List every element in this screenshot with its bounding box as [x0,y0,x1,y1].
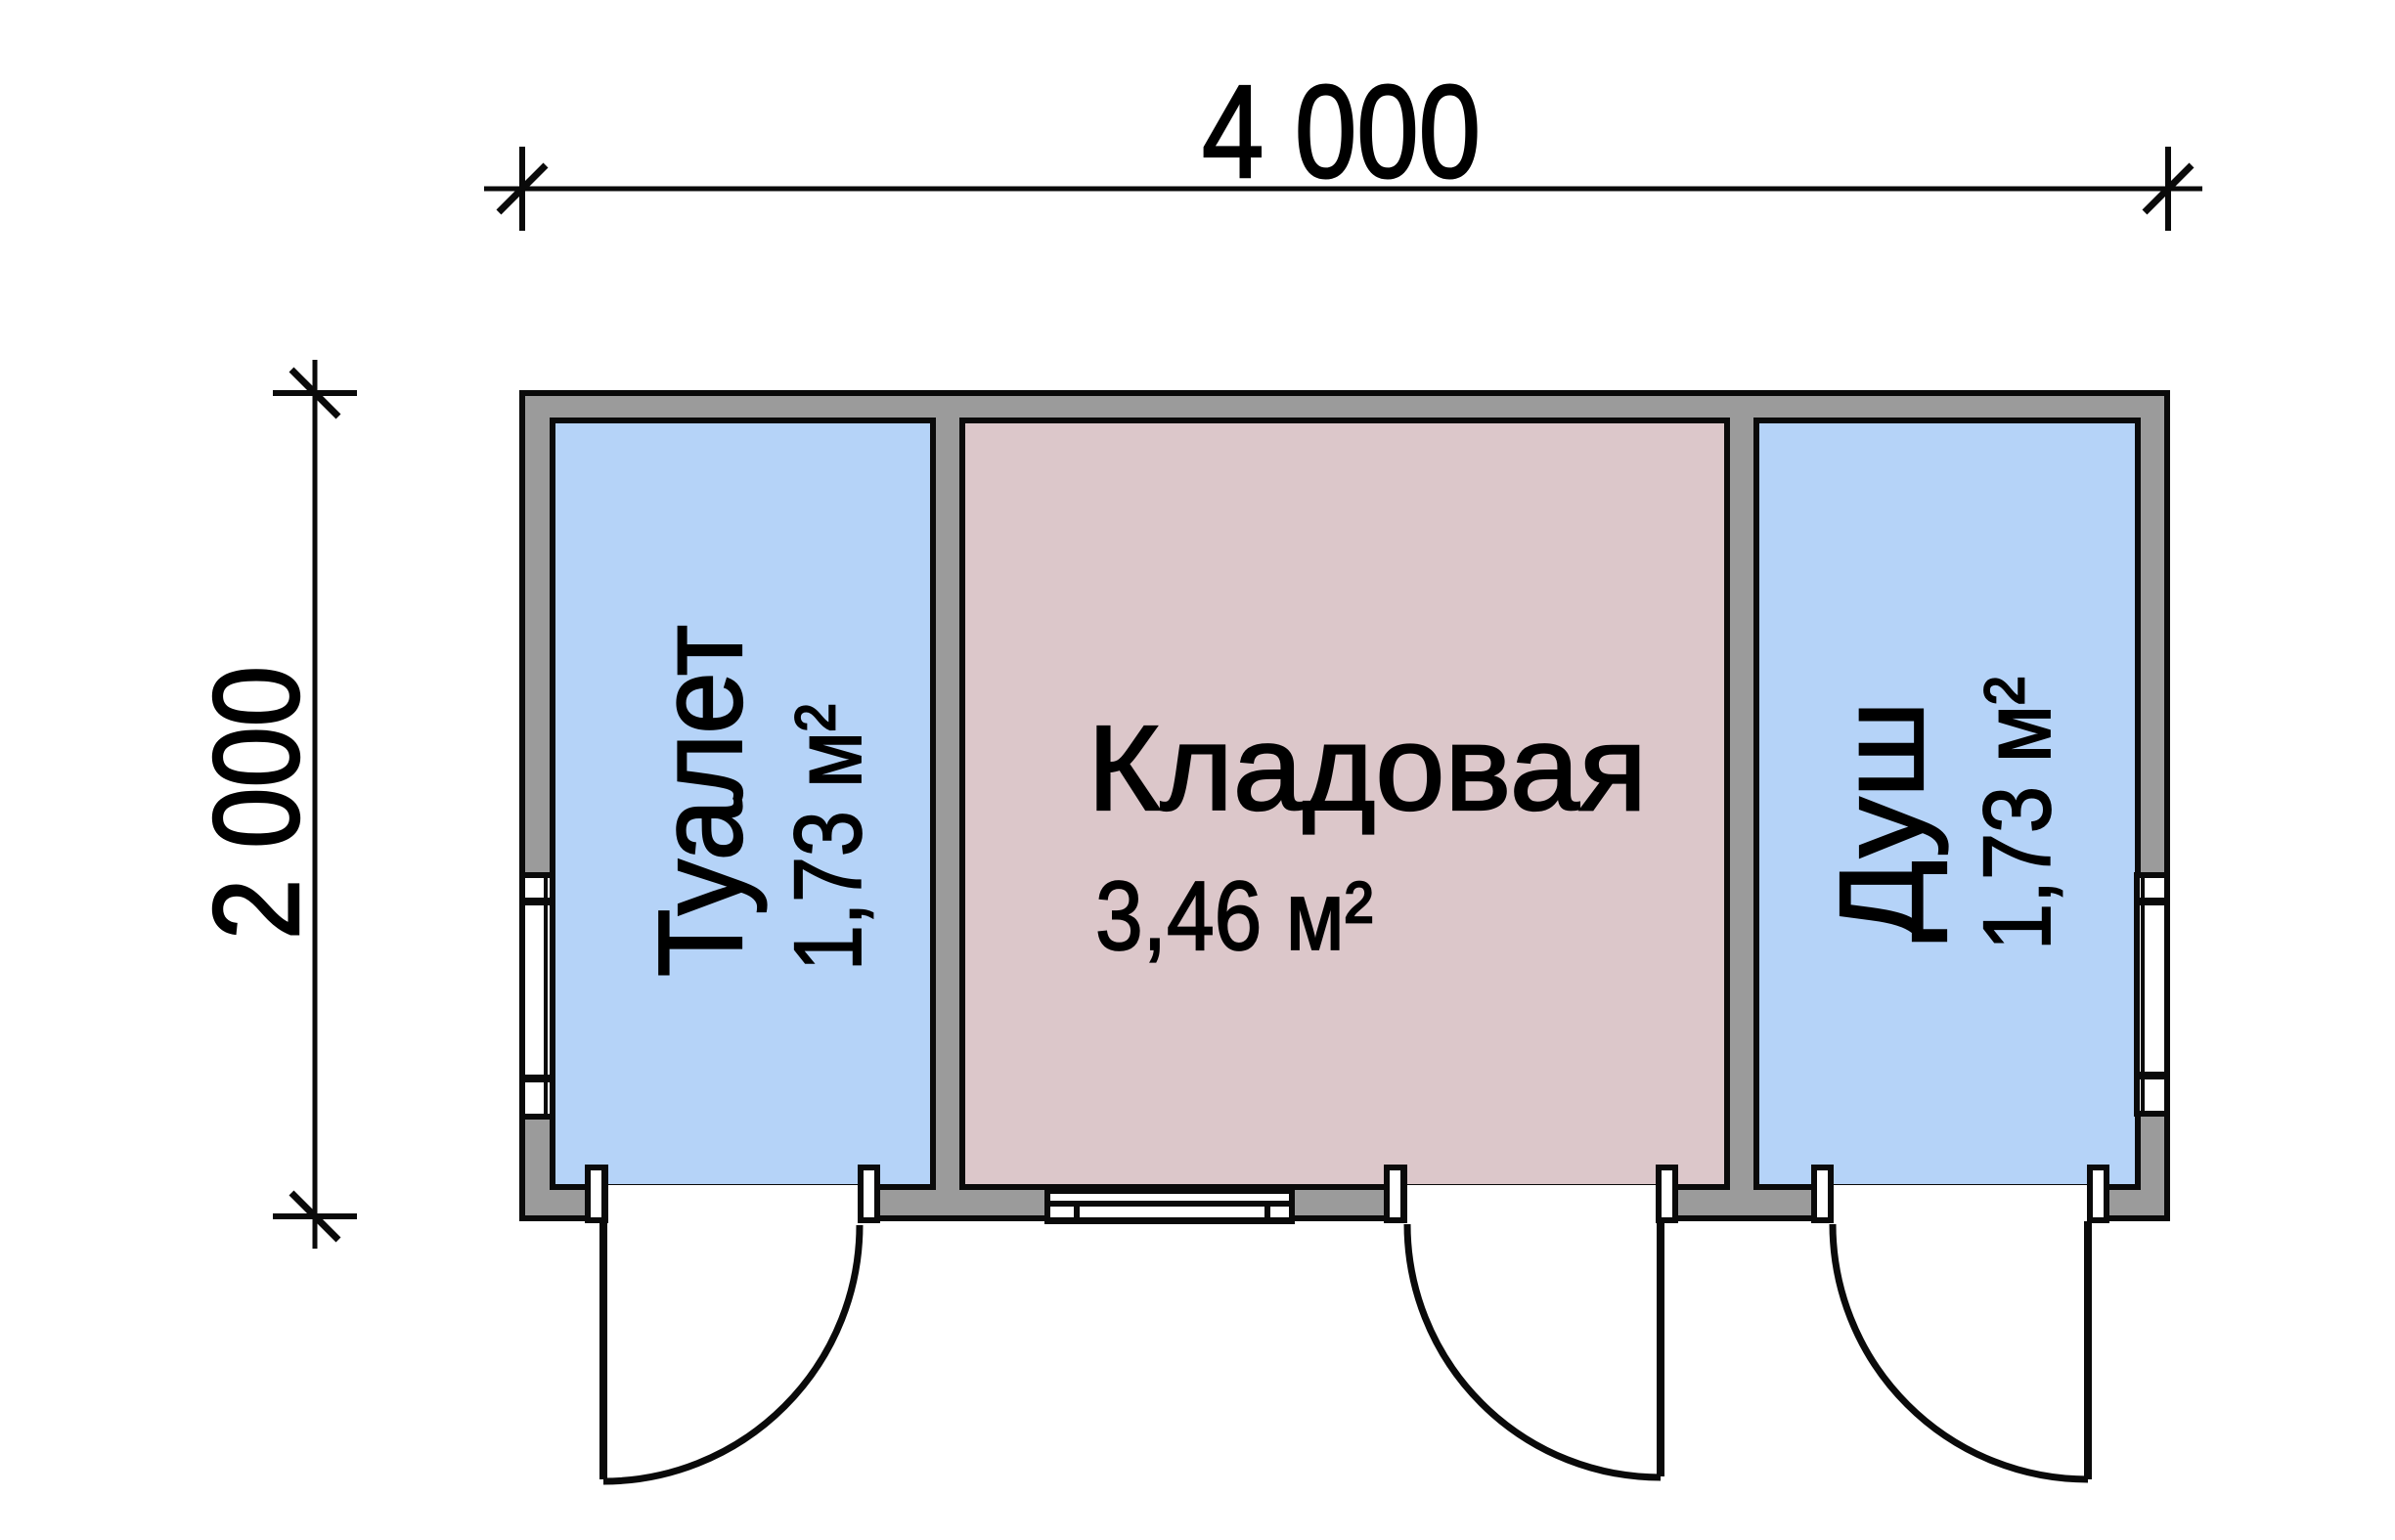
svg-text:1,73 м²: 1,73 м² [775,704,881,971]
svg-text:1,73 м²: 1,73 м² [1964,677,2070,950]
svg-text:2 000: 2 000 [190,666,325,940]
svg-text:Кладовая: Кладовая [1087,702,1647,836]
svg-text:Душ: Душ [1815,701,1948,942]
svg-text:3,46 м²: 3,46 м² [1095,861,1373,971]
svg-text:4 000: 4 000 [1202,58,1481,205]
svg-text:Туалет: Туалет [634,625,767,977]
